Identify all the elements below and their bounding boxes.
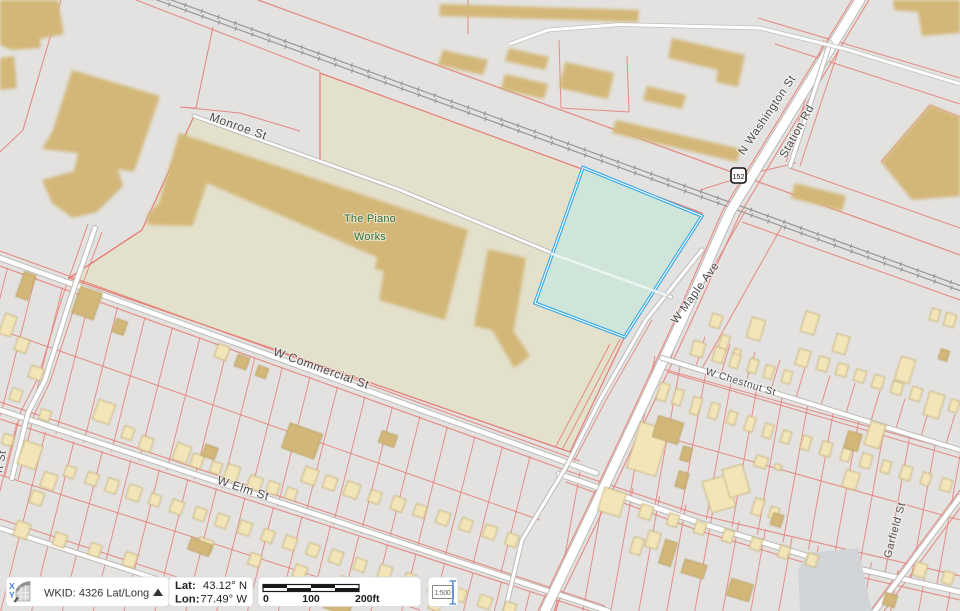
svg-text:100: 100 — [302, 593, 320, 605]
svg-text:200ft: 200ft — [355, 593, 380, 605]
svg-text:Lat:: Lat: — [175, 580, 196, 592]
svg-text:The Piano: The Piano — [344, 213, 396, 225]
svg-text:Works: Works — [354, 231, 386, 243]
svg-text:Lon:: Lon: — [175, 594, 199, 606]
svg-text:WKID: 4326 Lat/Long: WKID: 4326 Lat/Long — [44, 588, 149, 600]
svg-text:1:500: 1:500 — [434, 590, 450, 597]
svg-text:43.12° N: 43.12° N — [203, 580, 247, 592]
svg-text:77.49° W: 77.49° W — [200, 594, 247, 606]
svg-text:152: 152 — [733, 174, 745, 181]
svg-text:Y: Y — [9, 590, 15, 600]
svg-text:0: 0 — [263, 593, 269, 605]
